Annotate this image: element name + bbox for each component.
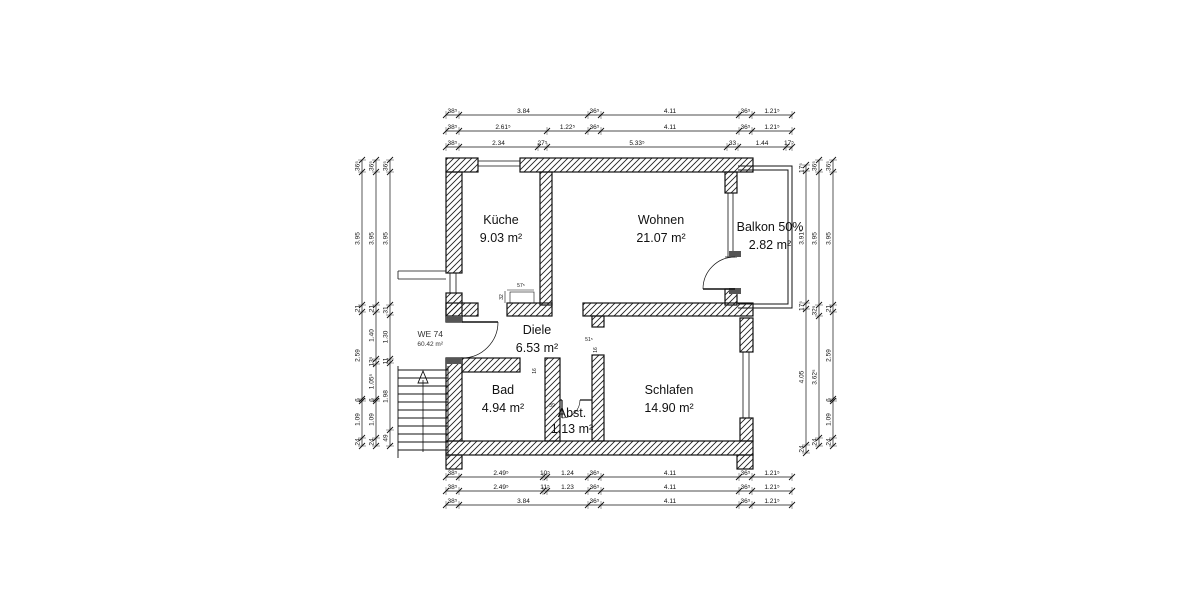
- wall: [583, 303, 753, 316]
- door-post: [446, 358, 462, 364]
- wall: [446, 158, 478, 172]
- dim-label: 4.11: [664, 470, 677, 477]
- dim-label: 36⁵: [590, 498, 600, 505]
- dim-label: 5.33⁵: [629, 140, 645, 147]
- dim-label: 1.22⁵: [560, 124, 576, 131]
- dim-label: 49: [383, 434, 390, 442]
- door-post: [446, 316, 462, 322]
- window-jambs: [446, 273, 462, 293]
- dim-chain: 38⁵2.49⁵10⁵1.2436⁵4.1136⁵1.21⁵: [443, 470, 795, 481]
- dim-label: 1.21⁵: [764, 124, 780, 131]
- dim-label: 1.40: [369, 329, 376, 342]
- dim-label: 36⁵: [812, 161, 819, 171]
- wall: [540, 172, 552, 305]
- dim-label: 1.21⁵: [764, 108, 780, 115]
- dim-label: 32⁵: [812, 305, 819, 315]
- wall: [725, 172, 737, 193]
- dim-label: 38⁵: [448, 498, 458, 505]
- wall: [737, 455, 753, 469]
- room-name-balkon-50: Balkon 50%: [737, 220, 804, 234]
- room-area-balkon-50: 2.82 m²: [749, 238, 791, 252]
- wall: [446, 172, 462, 273]
- dim-label: 36⁵: [355, 161, 362, 171]
- room-area-k-che: 9.03 m²: [480, 231, 522, 245]
- dim-label: 1.21⁵: [764, 470, 780, 477]
- dim-label: 38⁵: [448, 470, 458, 477]
- dim-label: 3.62⁵: [812, 369, 819, 385]
- window-jambs: [740, 352, 753, 418]
- dim-chain: 17⁵3.91⁵17⁵4.0524: [799, 162, 811, 456]
- dim-label: 2.59: [826, 349, 833, 362]
- window-glass: [450, 273, 456, 293]
- dim-label: 6: [826, 398, 833, 402]
- dim-label: 38⁵: [448, 124, 458, 131]
- dim-label: 11: [383, 357, 390, 364]
- dim-label: 1.09: [826, 413, 833, 426]
- dim-label: 1.98: [383, 390, 390, 403]
- dim-label: 1.21⁵: [764, 498, 780, 505]
- dim-label: 1.23: [561, 484, 574, 491]
- dim-label: 6: [355, 398, 362, 402]
- dim-label: 24: [826, 438, 833, 446]
- dim-label: 3.95: [355, 232, 362, 245]
- dim-label: 36⁵: [590, 484, 600, 491]
- wall: [446, 303, 478, 316]
- dim-label: 2.34: [492, 140, 505, 147]
- dim-label: 36⁵: [369, 161, 376, 171]
- unit-area-label: 60.42 m²: [417, 341, 443, 348]
- room-area-abst: 1.13 m²: [551, 422, 593, 436]
- dim-label: 4.11: [664, 108, 677, 115]
- room-area-diele: 6.53 m²: [516, 341, 558, 355]
- room-labels: Küche9.03 m²Wohnen21.07 m²Balkon 50%2.82…: [480, 213, 804, 436]
- dim-label: 4.11: [664, 124, 677, 131]
- wall: [740, 418, 753, 441]
- dim-label: 2.49⁵: [493, 470, 509, 477]
- dim-label: 1.44: [756, 140, 769, 147]
- dim-label: 27⁵: [538, 140, 548, 147]
- dim-label: 1.09: [355, 413, 362, 426]
- dim-label: 36⁵: [741, 498, 751, 505]
- micro-dim-label: 16: [532, 368, 538, 374]
- room-name-abst: Abst.: [558, 406, 587, 420]
- room-name-bad: Bad: [492, 383, 514, 397]
- wall: [740, 318, 753, 352]
- door-post: [729, 251, 741, 257]
- window-glass: [728, 193, 733, 257]
- room-name-wohnen: Wohnen: [638, 213, 684, 227]
- window-glass: [743, 352, 749, 418]
- dim-label: 36⁵: [741, 108, 751, 115]
- dim-label: 24: [812, 438, 819, 446]
- room-area-wohnen: 21.07 m²: [636, 231, 685, 245]
- micro-dim-label: 39: [549, 403, 555, 409]
- dim-label: 2.49⁵: [493, 484, 509, 491]
- dim-label: 3.95: [812, 232, 819, 245]
- dim-label: 17⁵: [799, 301, 806, 311]
- micro-dim-label: 16: [593, 347, 599, 353]
- wall: [446, 441, 753, 455]
- dim-label: 31: [383, 306, 390, 314]
- dim-label: 36⁵: [590, 124, 600, 131]
- dim-label: 24: [355, 438, 362, 446]
- dim-label: 36⁵: [383, 161, 390, 171]
- staircase: [398, 366, 448, 458]
- floorplan-canvas: 38⁵3.8436⁵4.1136⁵1.21⁵38⁵2.61⁵1.22⁵36⁵4.…: [0, 0, 1200, 600]
- dim-label: 4.11: [664, 498, 677, 505]
- dim-label: 1.30: [383, 330, 390, 343]
- room-area-bad: 4.94 m²: [482, 401, 524, 415]
- balcony-outer-rail: [738, 166, 792, 308]
- dim-label: 6: [369, 398, 376, 402]
- dim-label: 2.59: [355, 349, 362, 362]
- wall: [592, 316, 604, 327]
- kitchen-door-opening: [478, 303, 507, 316]
- dim-label: 13⁵: [369, 356, 376, 366]
- dim-label: 24: [799, 445, 806, 453]
- wall: [462, 358, 520, 372]
- dim-chain: 36⁵3.95212.5961.0924: [826, 157, 838, 449]
- niche-lines: [505, 290, 534, 303]
- dim-label: 3.95: [369, 232, 376, 245]
- dim-label: 3.84: [517, 108, 530, 115]
- dim-chain: 38⁵3.8436⁵4.1136⁵1.21⁵: [443, 108, 795, 119]
- micro-dim-label: 32: [499, 294, 505, 300]
- dim-label: 21: [826, 305, 833, 313]
- micro-dim-label: 57⁵: [517, 283, 525, 289]
- dim-chain: 36⁵3.95212.5961.0924: [355, 157, 367, 449]
- dim-label: 1.05⁵: [369, 374, 376, 390]
- dim-chain: 36⁵3.95211.4013⁵1.05⁵61.0924: [369, 157, 381, 449]
- dim-label: 21: [369, 305, 376, 313]
- dim-chain: 38⁵2.61⁵1.22⁵36⁵4.1136⁵1.21⁵: [443, 124, 795, 135]
- balcony-door-swing: [703, 257, 735, 289]
- dim-label: 17⁵: [799, 163, 806, 173]
- room-name-diele: Diele: [523, 323, 552, 337]
- wall: [507, 303, 552, 316]
- dim-chain: 38⁵3.8436⁵4.1136⁵1.21⁵: [443, 498, 795, 509]
- dim-label: 1.24: [561, 470, 574, 477]
- dim-label: 36⁵: [741, 124, 751, 131]
- room-area-schlafen: 14.90 m²: [644, 401, 693, 415]
- dim-label: 2.61⁵: [495, 124, 511, 131]
- window-glass: [478, 161, 520, 166]
- micro-dim-label: 51⁵: [585, 337, 593, 343]
- dim-label: 38⁵: [448, 484, 458, 491]
- room-name-schlafen: Schlafen: [645, 383, 694, 397]
- dim-label: 4.11: [664, 484, 677, 491]
- dim-label: 21: [355, 305, 362, 313]
- dim-label: 36⁵: [741, 484, 751, 491]
- window-sill: [398, 271, 446, 279]
- dim-label: 36⁵: [741, 470, 751, 477]
- balcony-inner-rail: [738, 170, 788, 304]
- dim-chain: 36⁵3.9532⁵3.62⁵24: [812, 157, 824, 449]
- dim-label: 36⁵: [590, 108, 600, 115]
- niche-outline: [510, 292, 534, 303]
- window-jambs: [478, 158, 520, 172]
- room-name-k-che: Küche: [483, 213, 518, 227]
- walls: [446, 158, 753, 469]
- dim-label: 3.95: [383, 232, 390, 245]
- dim-label: 38⁵: [448, 108, 458, 115]
- dim-label: 33: [729, 140, 737, 147]
- dim-label: 1.09: [369, 413, 376, 426]
- dim-label: 36⁵: [590, 470, 600, 477]
- window-jambs: [725, 193, 737, 257]
- wall: [592, 355, 604, 441]
- dim-label: 36⁵: [826, 161, 833, 171]
- dim-chain: 36⁵3.95311.30111.9849: [383, 157, 395, 449]
- dim-label: 1.21⁵: [764, 484, 780, 491]
- living-door-opening: [552, 303, 583, 316]
- dim-label: 3.84: [517, 498, 530, 505]
- dim-chain: 38⁵2.49⁵11⁵1.2336⁵4.1136⁵1.21⁵: [443, 484, 795, 495]
- dim-label: 38⁵: [448, 140, 458, 147]
- dim-label: 11⁵: [540, 484, 550, 491]
- dim-label: 4.05: [799, 370, 806, 383]
- dim-label: 17⁵: [784, 140, 794, 147]
- dim-chain: 38⁵2.3427⁵5.33⁵331.4417⁵: [443, 140, 795, 151]
- dim-label: 10⁵: [540, 470, 550, 477]
- unit-id-label: WE 74: [417, 329, 443, 339]
- floorplan-drawing: 38⁵3.8436⁵4.1136⁵1.21⁵38⁵2.61⁵1.22⁵36⁵4.…: [0, 0, 1200, 600]
- dim-label: 24: [369, 438, 376, 446]
- balcony-railing: [738, 166, 792, 308]
- entry-door-swing: [462, 322, 498, 358]
- wall: [520, 158, 753, 172]
- dim-label: 3.95: [826, 232, 833, 245]
